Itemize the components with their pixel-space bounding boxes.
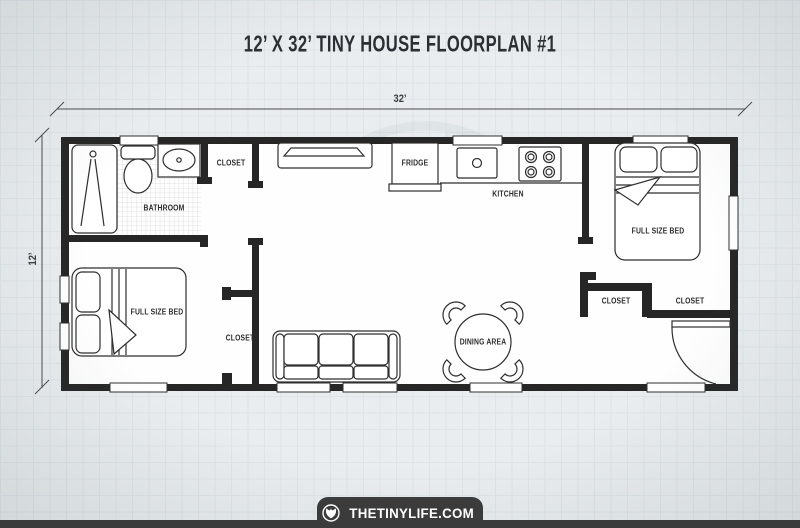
room-label-bed-right: FULL SIZE BED xyxy=(632,227,685,236)
footer-badge: THETINYLIFE.COM xyxy=(317,497,483,528)
floorplan-page: 12’ X 32’ TINY HOUSE FLOORPLAN #1 32’ 12… xyxy=(0,0,800,528)
toilet-icon xyxy=(121,146,155,193)
footer-site-text: THETINYLIFE.COM xyxy=(350,505,475,521)
shower-icon xyxy=(72,145,117,233)
bathroom-sink-icon xyxy=(158,144,200,177)
page-title: 12’ X 32’ TINY HOUSE FLOORPLAN #1 xyxy=(244,31,557,58)
console-table-icon xyxy=(278,143,372,168)
height-dimension-label: 12’ xyxy=(27,252,39,265)
room-label-bed-left: FULL SIZE BED xyxy=(131,308,184,317)
room-label-bathroom: BATHROOM xyxy=(144,204,185,213)
room-label-kitchen: KITCHEN xyxy=(492,190,523,199)
sofa-icon xyxy=(273,331,400,382)
stove-icon xyxy=(519,147,561,181)
bed-right-icon xyxy=(615,143,700,260)
width-dimension-label: 32’ xyxy=(393,93,406,105)
floorplan-drawing xyxy=(0,0,800,528)
tinylife-logo-icon xyxy=(322,504,340,522)
room-label-closet-left: CLOSET xyxy=(226,334,255,343)
room-label-closet-right-b: CLOSET xyxy=(676,297,705,306)
room-label-closet-right-a: CLOSET xyxy=(602,297,631,306)
room-label-dining: DINING AREA xyxy=(460,338,507,347)
room-label-fridge: FRIDGE xyxy=(402,159,429,168)
room-label-hall-closet: CLOSET xyxy=(217,159,246,168)
